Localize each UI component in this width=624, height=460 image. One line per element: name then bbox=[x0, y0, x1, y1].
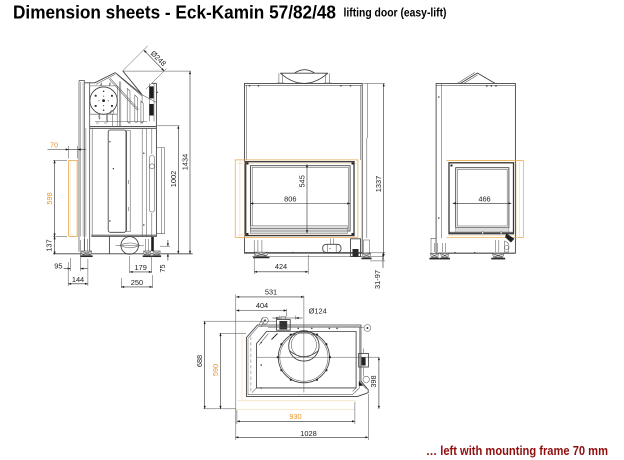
svg-text:… left with mounting frame 70: … left with mounting frame 70 mm bbox=[426, 443, 608, 458]
svg-text:466: 466 bbox=[478, 194, 490, 203]
svg-text:Ø124: Ø124 bbox=[309, 307, 327, 316]
svg-text:930: 930 bbox=[289, 412, 301, 421]
svg-text:70: 70 bbox=[50, 141, 58, 150]
svg-text:688: 688 bbox=[195, 355, 204, 367]
svg-text:75: 75 bbox=[158, 264, 167, 272]
svg-text:598: 598 bbox=[45, 192, 54, 204]
svg-text:806: 806 bbox=[284, 195, 296, 204]
svg-text:1002: 1002 bbox=[169, 171, 178, 187]
svg-text:590: 590 bbox=[211, 364, 220, 376]
svg-text:1434: 1434 bbox=[181, 154, 190, 170]
svg-text:137: 137 bbox=[45, 239, 54, 251]
svg-text:1028: 1028 bbox=[300, 429, 316, 438]
svg-text:545: 545 bbox=[298, 175, 307, 187]
svg-text:404: 404 bbox=[256, 301, 268, 310]
svg-text:179: 179 bbox=[135, 263, 147, 272]
svg-text:250: 250 bbox=[131, 278, 143, 287]
svg-text:424: 424 bbox=[275, 262, 287, 271]
svg-text:Dimension sheets - Eck-Kamin 5: Dimension sheets - Eck-Kamin 57/82/48 bbox=[13, 1, 336, 22]
svg-text:398: 398 bbox=[369, 375, 378, 387]
svg-text:144: 144 bbox=[72, 275, 84, 284]
svg-text:31-97: 31-97 bbox=[373, 270, 382, 289]
svg-text:1337: 1337 bbox=[374, 176, 383, 192]
svg-text:531: 531 bbox=[265, 288, 277, 297]
svg-text:lifting door (easy-lift): lifting door (easy-lift) bbox=[344, 7, 447, 20]
svg-text:95: 95 bbox=[54, 261, 62, 270]
